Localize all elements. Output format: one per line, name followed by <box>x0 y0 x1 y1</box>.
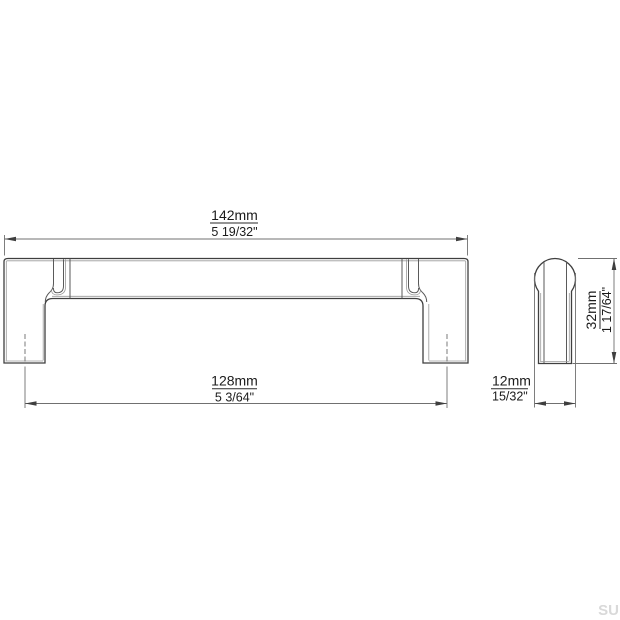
dimension-text-imperial: 1 17/64" <box>600 287 614 333</box>
arrowhead-left <box>535 401 547 405</box>
dimension-height: 32mm 1 17/64" <box>573 259 618 364</box>
arrowhead-left <box>5 237 17 242</box>
dimension-text-metric: 142mm <box>211 207 258 223</box>
arrowhead-right <box>564 401 576 405</box>
arrowhead-top <box>612 259 617 271</box>
watermark-text: SU <box>598 602 619 619</box>
dimension-text-imperial: 5 19/32" <box>211 225 257 239</box>
dimension-text-metric: 32mm <box>583 291 599 330</box>
dimension-text-metric: 128mm <box>211 373 258 389</box>
side-view: 32mm 1 17/64" 12mm 15/32" <box>491 259 617 408</box>
handle-front-outline <box>4 259 468 364</box>
dimension-text-metric: 12mm <box>492 373 531 389</box>
dimension-text-imperial: 15/32" <box>492 390 528 404</box>
arrowhead-right <box>456 237 468 242</box>
arrowhead-bottom <box>612 352 617 364</box>
arrowhead-right <box>436 401 448 406</box>
handle-technical-drawing: 142mm 5 19/32" 128mm 5 3/64" <box>0 0 620 620</box>
arrowhead-left <box>25 401 37 406</box>
front-view: 142mm 5 19/32" 128mm 5 3/64" <box>4 207 468 408</box>
dimension-overall-length: 142mm 5 19/32" <box>5 207 468 256</box>
dimension-hole-spacing: 128mm 5 3/64" <box>25 367 447 409</box>
dimension-text-imperial: 5 3/64" <box>215 391 254 405</box>
